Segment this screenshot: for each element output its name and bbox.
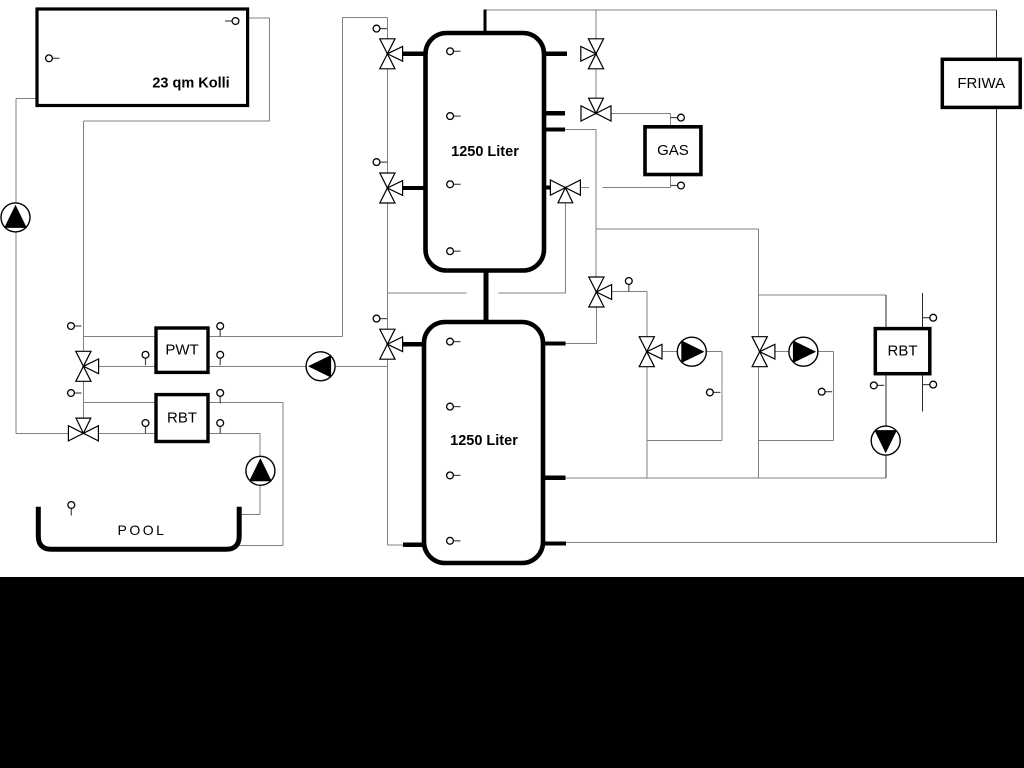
svg-text:RBT: RBT [167,410,197,427]
svg-text:PWT: PWT [165,342,198,359]
svg-text:1250 Liter: 1250 Liter [451,144,519,160]
svg-text:GAS: GAS [657,142,689,159]
svg-text:RBT: RBT [888,343,918,360]
svg-text:FRIWA: FRIWA [957,75,1005,92]
svg-text:POOL: POOL [118,522,167,538]
svg-text:23 qm Kolli: 23 qm Kolli [152,76,229,92]
svg-text:1250 Liter: 1250 Liter [450,433,518,449]
